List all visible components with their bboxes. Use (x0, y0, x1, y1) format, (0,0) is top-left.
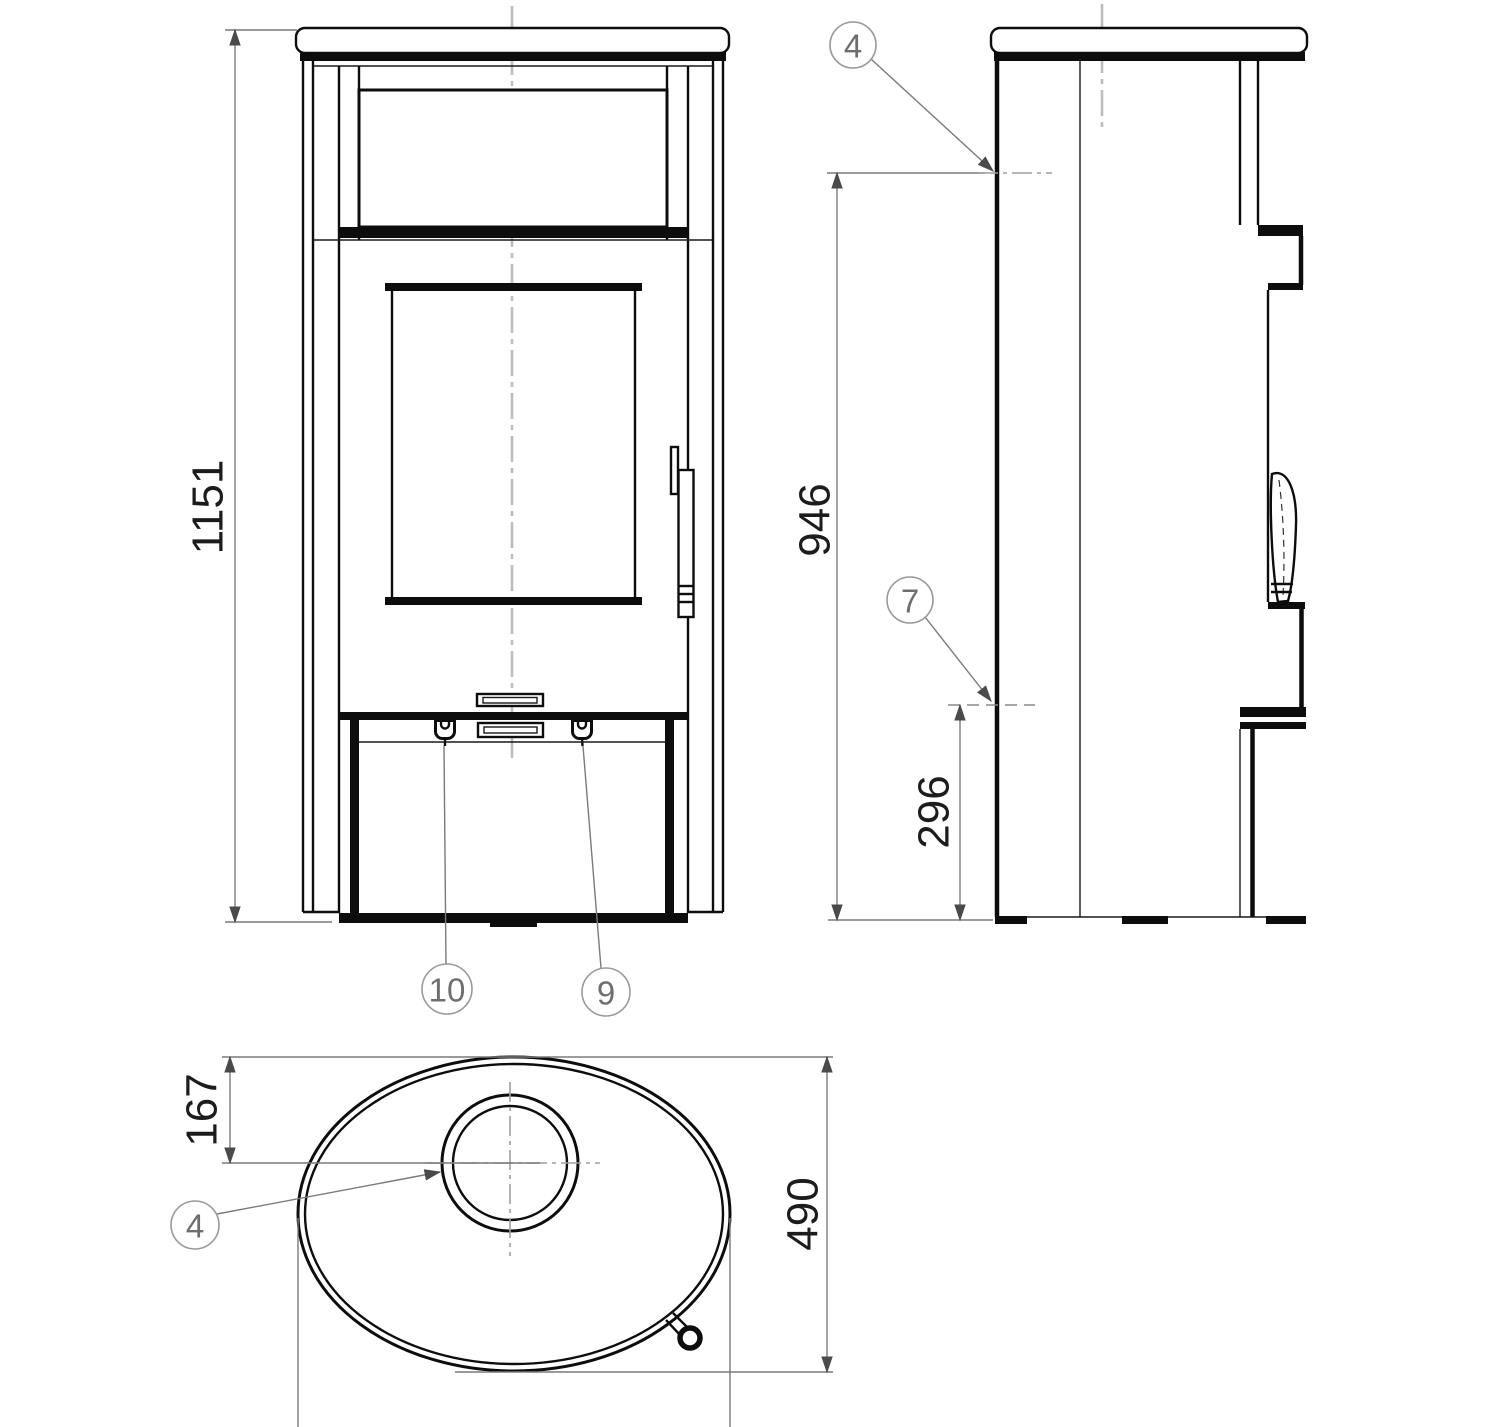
door-handle-front (671, 447, 694, 617)
callout-front-knob-right: 9 (582, 746, 630, 1016)
warming-compartment-band (339, 227, 688, 238)
callout-front-knob-right-label: 9 (597, 975, 615, 1012)
callout-side-rear-outlet-label: 7 (901, 583, 919, 620)
warming-compartment-window (359, 90, 667, 227)
side-view (991, 4, 1307, 924)
front-foot-tab (490, 923, 537, 927)
callout-top-flue-collar-label: 4 (186, 1208, 204, 1245)
door-bottom-band (339, 712, 688, 720)
dim-flue-back-offset-label: 167 (178, 1073, 227, 1146)
door-window (385, 283, 642, 605)
plinth-front (339, 719, 688, 927)
air-control-slot-lower (478, 723, 543, 737)
air-control-slot-upper (477, 694, 543, 706)
callout-side-rear-outlet: 7 (887, 577, 991, 701)
technical-drawing: 1151 946 296 167 490 4 7 10 (0, 0, 1500, 1427)
dimension-rear-lower-height: 296 (910, 705, 1036, 920)
callout-front-knob-left-label: 10 (429, 972, 466, 1009)
dimension-overall-height: 1151 (184, 30, 333, 922)
dim-rear-lower-height-label: 296 (910, 775, 959, 848)
top-plate-band-front (300, 52, 726, 61)
top-plate-band-side (994, 52, 1305, 61)
callout-side-top-plate: 4 (830, 22, 993, 171)
callout-front-knob-left: 10 (422, 746, 472, 1014)
top-plate-front (296, 28, 729, 53)
front-view (296, 6, 729, 927)
door-handle-side (1271, 473, 1296, 602)
dim-overall-height-label: 1151 (184, 460, 233, 555)
callout-side-top-plate-label: 4 (844, 28, 862, 65)
top-plate-side (991, 28, 1307, 53)
dim-base-depth-label: 490 (779, 1177, 828, 1250)
side-bottom (995, 916, 1306, 924)
dim-rear-flue-height-label: 946 (791, 483, 840, 556)
